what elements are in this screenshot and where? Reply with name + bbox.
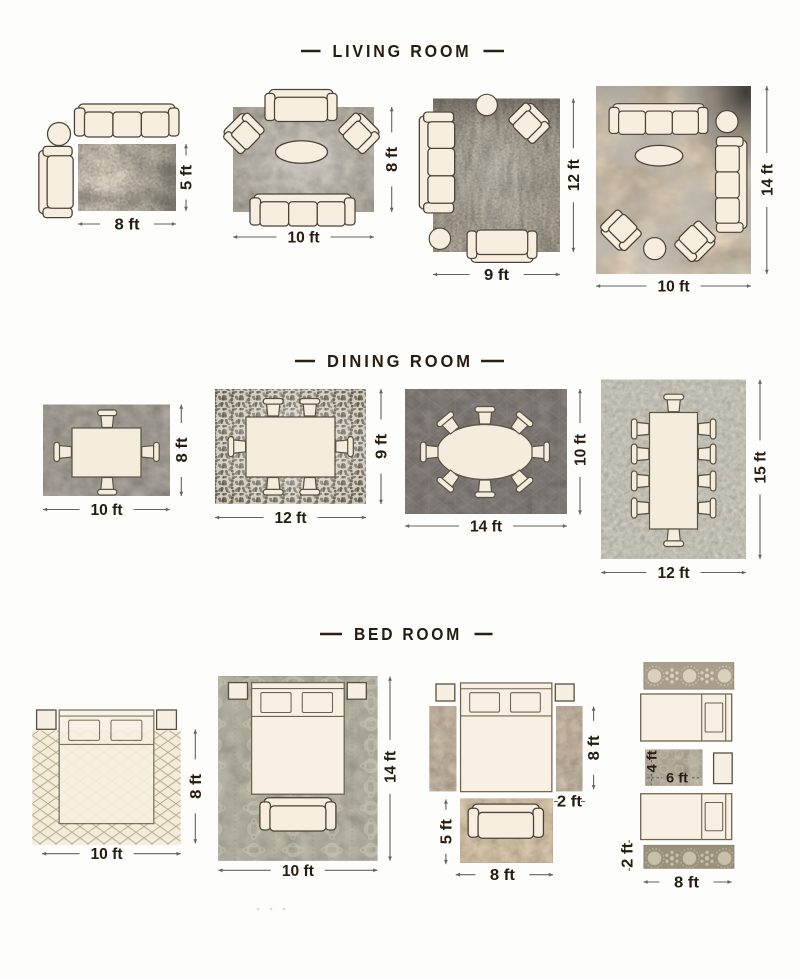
svg-text:2 ft: 2 ft bbox=[620, 843, 637, 868]
svg-text:8 ft: 8 ft bbox=[384, 147, 401, 172]
svg-text:8 ft: 8 ft bbox=[586, 735, 603, 760]
svg-text:4 ft: 4 ft bbox=[644, 750, 660, 772]
svg-text:5 ft: 5 ft bbox=[438, 819, 455, 844]
svg-text:10 ft: 10 ft bbox=[91, 846, 123, 863]
svg-text:5 ft: 5 ft bbox=[179, 165, 196, 190]
svg-text:10 ft: 10 ft bbox=[288, 230, 320, 247]
svg-text:14 ft: 14 ft bbox=[383, 751, 400, 783]
svg-text:DINING ROOM: DINING ROOM bbox=[327, 351, 473, 371]
svg-text:15 ft: 15 ft bbox=[753, 452, 770, 484]
svg-text:10 ft: 10 ft bbox=[658, 279, 690, 296]
svg-text:8 ft: 8 ft bbox=[674, 875, 699, 892]
svg-text:10 ft: 10 ft bbox=[91, 502, 123, 519]
svg-text:12 ft: 12 ft bbox=[658, 565, 690, 582]
svg-text:9 ft: 9 ft bbox=[484, 267, 509, 284]
svg-text:14 ft: 14 ft bbox=[759, 164, 776, 196]
svg-text:LIVING ROOM: LIVING ROOM bbox=[333, 41, 472, 61]
svg-text:8 ft: 8 ft bbox=[188, 774, 205, 799]
svg-text:12 ft: 12 ft bbox=[566, 159, 583, 191]
svg-text:BED ROOM: BED ROOM bbox=[354, 624, 462, 644]
svg-text:12 ft: 12 ft bbox=[275, 510, 307, 527]
svg-text:6 ft: 6 ft bbox=[666, 770, 688, 786]
svg-text:9 ft: 9 ft bbox=[374, 434, 391, 459]
svg-text:8 ft: 8 ft bbox=[174, 438, 191, 463]
svg-text:8 ft: 8 ft bbox=[490, 867, 515, 884]
svg-text:8 ft: 8 ft bbox=[115, 217, 140, 234]
svg-text:10 ft: 10 ft bbox=[282, 863, 314, 880]
svg-text:10 ft: 10 ft bbox=[573, 434, 590, 466]
svg-text:14 ft: 14 ft bbox=[470, 519, 502, 536]
svg-text:2 ft: 2 ft bbox=[557, 793, 582, 810]
